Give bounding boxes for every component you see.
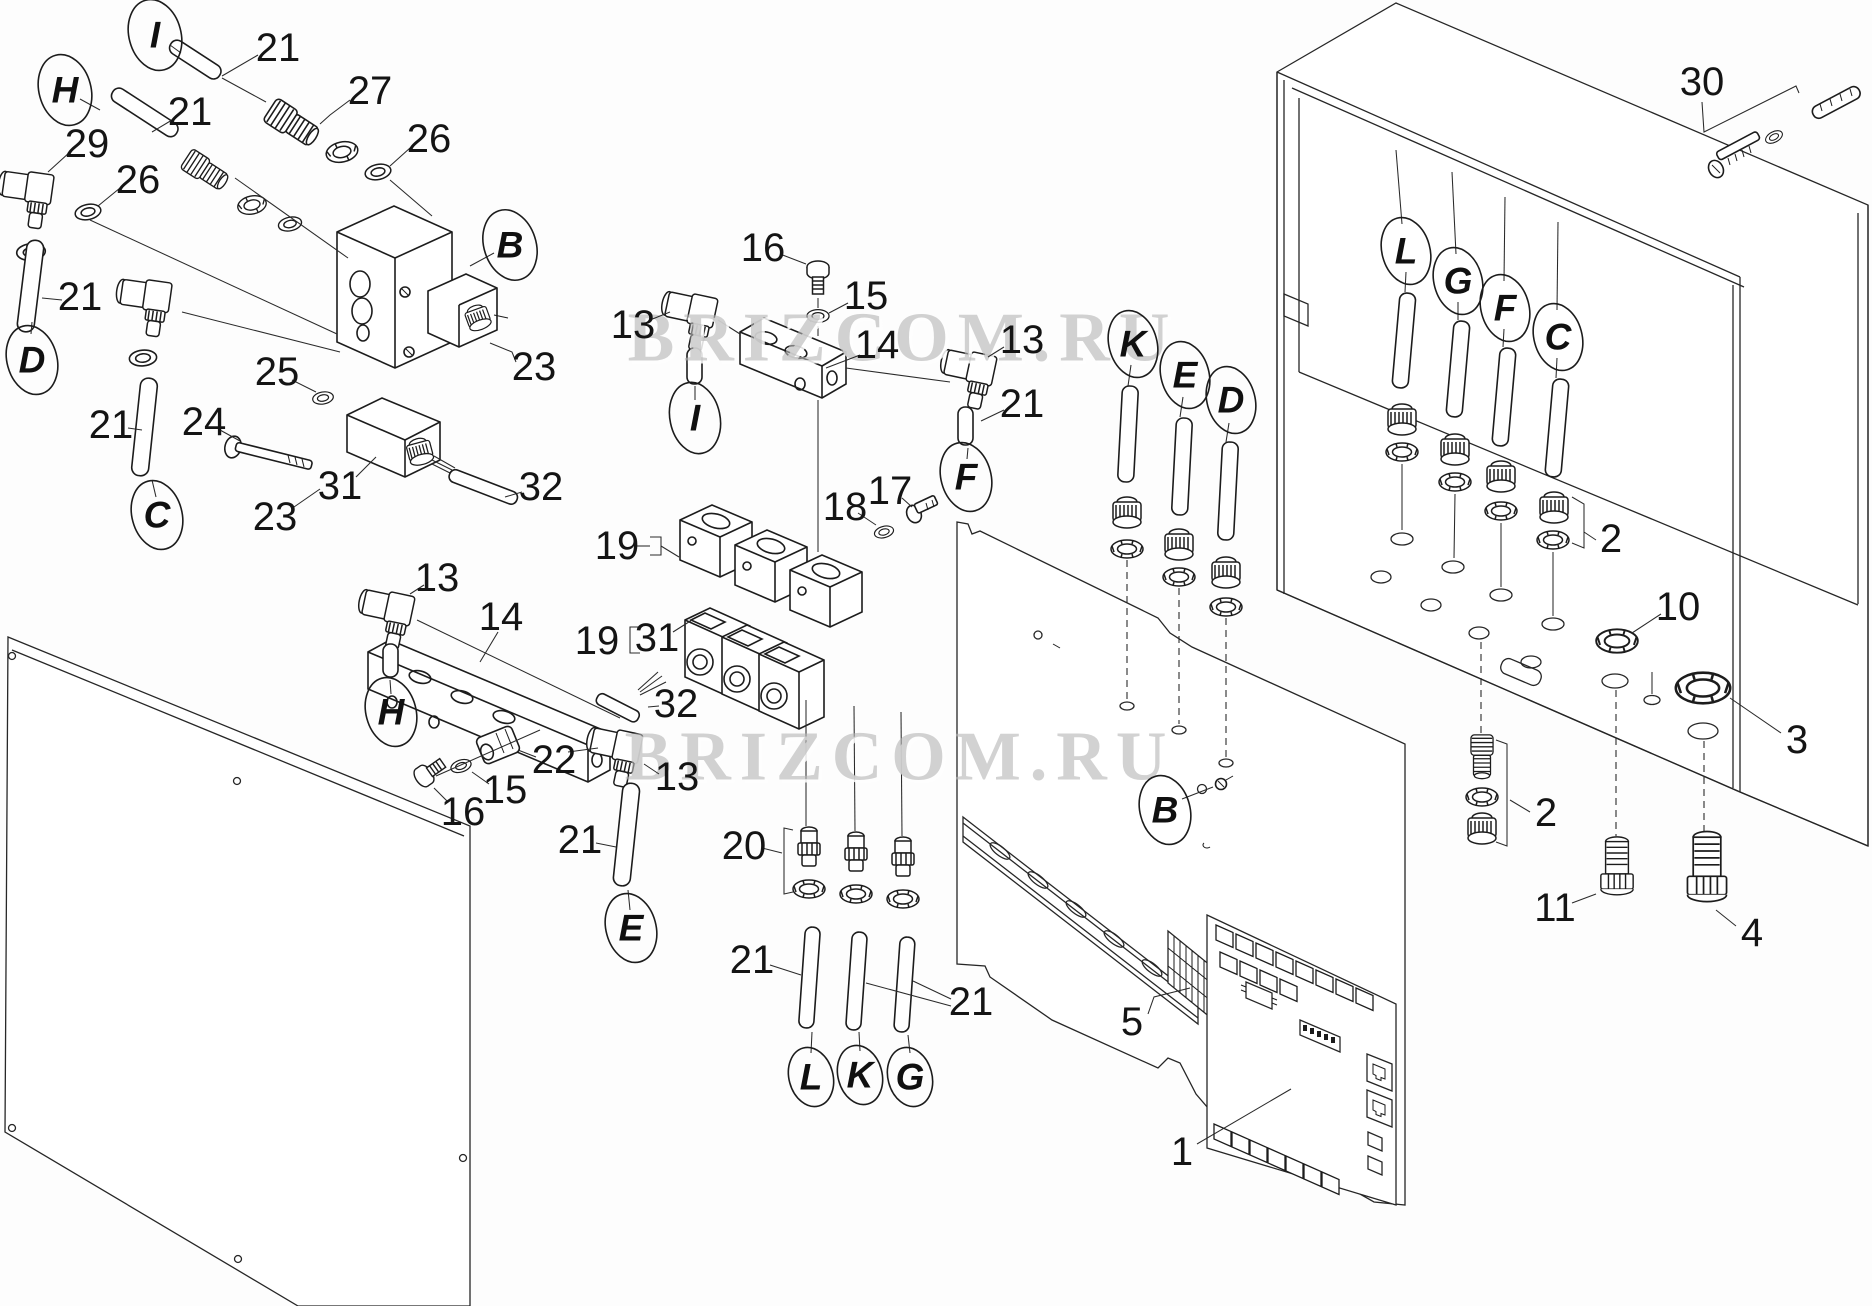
svg-text:D: D xyxy=(19,340,46,381)
callout-31: 31 xyxy=(318,464,363,508)
callout-25: 25 xyxy=(255,350,300,394)
callout-26: 26 xyxy=(407,117,452,161)
valve-assembly-19 xyxy=(595,495,938,729)
callout-19: 19 xyxy=(575,619,620,663)
callout-15: 15 xyxy=(844,274,889,318)
svg-text:G: G xyxy=(1444,261,1473,302)
callout-21: 21 xyxy=(1000,382,1045,426)
callout-2: 2 xyxy=(1535,791,1557,835)
valve-block-b xyxy=(337,206,508,368)
callout-5: 5 xyxy=(1121,1000,1143,1044)
callout-3: 3 xyxy=(1786,718,1808,762)
callout-21: 21 xyxy=(168,90,213,134)
callout-18: 18 xyxy=(823,485,868,529)
svg-text:B: B xyxy=(497,225,524,266)
callout-16: 16 xyxy=(741,226,786,270)
tag-C: C xyxy=(124,475,190,556)
svg-text:I: I xyxy=(150,15,161,56)
solenoid-31 xyxy=(347,398,519,506)
door-panel xyxy=(5,637,470,1306)
callout-21: 21 xyxy=(89,403,134,447)
callout-21: 21 xyxy=(949,980,994,1024)
callout-21: 21 xyxy=(558,818,603,862)
svg-text:L: L xyxy=(1395,231,1418,272)
svg-text:D: D xyxy=(1218,380,1245,421)
callout-20: 20 xyxy=(722,824,767,868)
callout-27: 27 xyxy=(348,69,393,113)
callout-13: 13 xyxy=(415,556,460,600)
callout-21: 21 xyxy=(256,26,301,70)
callout-13: 13 xyxy=(611,303,656,347)
callout-16: 16 xyxy=(441,790,486,834)
svg-text:F: F xyxy=(1494,288,1518,329)
svg-text:C: C xyxy=(144,495,172,536)
tag-I: I xyxy=(121,0,190,77)
svg-text:F: F xyxy=(955,457,979,498)
enclosure-box xyxy=(1277,3,1868,846)
callout-32: 32 xyxy=(519,465,564,509)
exploded-diagram: BRIZCOM.RU BRIZCOM.RU BRIZCOM.RU BRIZCOM… xyxy=(0,0,1872,1306)
svg-text:H: H xyxy=(378,692,406,733)
callout-11: 11 xyxy=(1534,886,1576,930)
callout-21: 21 xyxy=(58,275,103,319)
callout-23: 23 xyxy=(253,495,298,539)
svg-text:E: E xyxy=(619,908,645,949)
callout-26: 26 xyxy=(116,158,161,202)
svg-text:H: H xyxy=(52,70,80,111)
svg-text:E: E xyxy=(1173,355,1199,396)
callout-29: 29 xyxy=(65,122,110,166)
callout-14: 14 xyxy=(855,323,900,367)
callout-2: 2 xyxy=(1600,517,1622,561)
svg-text:G: G xyxy=(896,1057,925,1098)
watermark-text: BRIZCOM.RU xyxy=(628,300,1179,377)
callout-19: 19 xyxy=(595,524,640,568)
callout-17: 17 xyxy=(868,469,913,513)
watermark-text: BRIZCOM.RU xyxy=(625,719,1176,796)
callout-13: 13 xyxy=(1000,318,1045,362)
callout-21: 21 xyxy=(730,938,775,982)
diagram-page: BRIZCOM.RU BRIZCOM.RU BRIZCOM.RU BRIZCOM… xyxy=(0,0,1872,1306)
callout-13: 13 xyxy=(655,755,700,799)
callout-1: 1 xyxy=(1171,1130,1193,1174)
callout-23: 23 xyxy=(512,345,557,389)
c-line-group xyxy=(111,276,340,477)
callout-10: 10 xyxy=(1656,585,1701,629)
callout-31: 31 xyxy=(635,616,680,660)
callout-24: 24 xyxy=(182,400,227,444)
callout-15: 15 xyxy=(483,768,528,812)
tag-F: F xyxy=(933,437,999,518)
callout-4: 4 xyxy=(1741,911,1763,955)
svg-text:L: L xyxy=(800,1057,823,1098)
callout-22: 22 xyxy=(532,738,577,782)
svg-text:B: B xyxy=(1152,790,1179,831)
callout-30: 30 xyxy=(1680,60,1725,104)
callout-32: 32 xyxy=(654,682,699,726)
svg-text:K: K xyxy=(847,1055,876,1096)
svg-text:I: I xyxy=(690,398,701,439)
tag-D: D xyxy=(0,320,65,401)
svg-text:C: C xyxy=(1545,317,1573,358)
tag-B: B xyxy=(474,203,546,288)
svg-text:K: K xyxy=(1120,324,1149,365)
callout-14: 14 xyxy=(479,595,524,639)
tag-H: H xyxy=(31,48,100,131)
tag-E: E xyxy=(598,888,664,969)
